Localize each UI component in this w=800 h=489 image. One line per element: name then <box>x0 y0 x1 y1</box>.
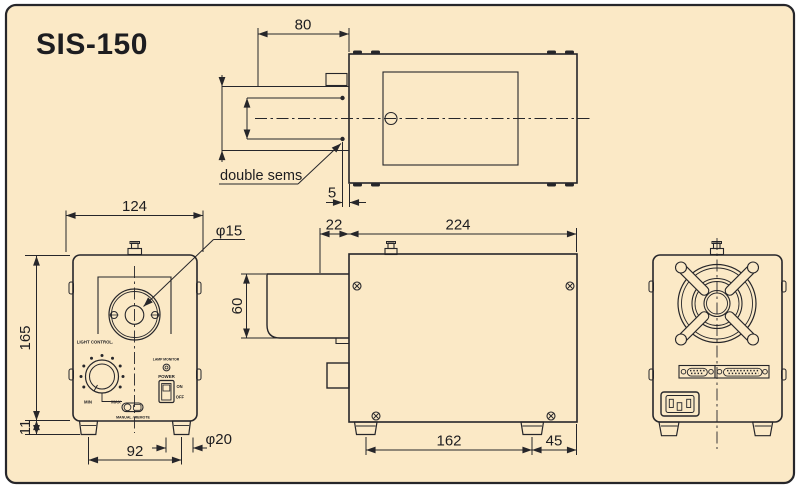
dim-5-label: 5 <box>328 185 336 202</box>
drawing-sheet-page: SIS-150 <box>0 0 800 489</box>
dim-92-label: 92 <box>127 443 144 460</box>
light-control-label: LIGHT CONTROL. <box>77 340 114 345</box>
sems-screw-bottom <box>340 137 344 141</box>
max-label: MAX <box>111 400 121 405</box>
dim-45-label: 45 <box>546 433 563 450</box>
power-on-label: ON <box>177 384 183 389</box>
dim-phi15-label: φ15 <box>216 223 242 240</box>
power-label: POWER <box>158 374 175 379</box>
dim-22-label: 22 <box>326 217 343 234</box>
dim-60-label: 60 <box>229 298 246 315</box>
dim-11-label: 11 <box>17 420 34 436</box>
power-off-label: OFF <box>176 395 185 400</box>
dim-162-label: 162 <box>436 433 461 450</box>
dim-224-label: 224 <box>445 217 470 234</box>
technical-drawing: SIS-150 <box>0 0 800 489</box>
manual-remote-label: MANUAL / REMOTE <box>116 416 150 420</box>
min-label: MIN <box>84 400 92 405</box>
dim-phi20-label: φ20 <box>206 431 232 448</box>
sems-screw-top <box>340 96 344 100</box>
double-sems-label: double sems <box>220 168 302 184</box>
drawing-title: SIS-150 <box>36 28 148 61</box>
dim-165-label: 165 <box>17 325 34 350</box>
dim-80-label: 80 <box>295 17 312 34</box>
lamp-monitor-label: LAMP MONITOR <box>153 358 180 362</box>
dim-124-label: 124 <box>122 198 147 215</box>
